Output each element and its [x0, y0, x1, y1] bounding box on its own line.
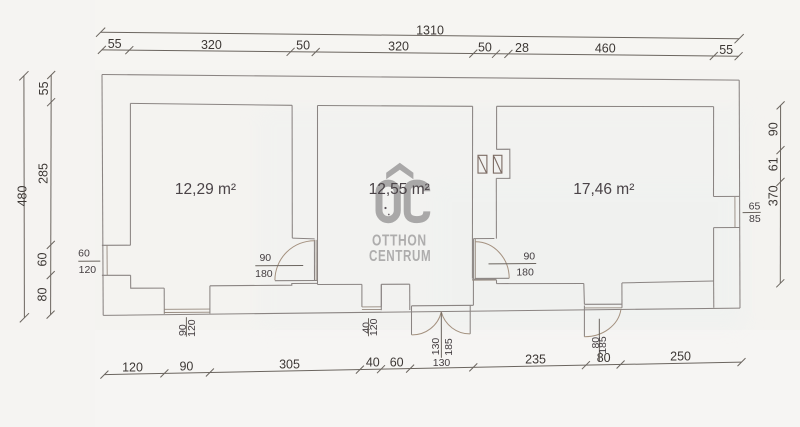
- svg-text:80: 80: [35, 288, 49, 302]
- svg-text:185: 185: [597, 336, 609, 354]
- svg-text:120: 120: [186, 319, 198, 337]
- svg-text:185: 185: [443, 338, 455, 356]
- svg-text:85: 85: [749, 213, 761, 225]
- svg-text:460: 460: [595, 42, 616, 56]
- svg-text:370: 370: [767, 185, 781, 206]
- svg-text:180: 180: [255, 268, 273, 280]
- svg-text:50: 50: [478, 41, 492, 55]
- svg-text:320: 320: [388, 40, 409, 54]
- svg-text:320: 320: [201, 38, 222, 52]
- svg-text:40: 40: [366, 356, 380, 370]
- svg-text:480: 480: [16, 186, 30, 207]
- svg-text:12,29 m²: 12,29 m²: [175, 181, 236, 198]
- svg-text:120: 120: [368, 318, 380, 336]
- svg-text:60: 60: [390, 355, 404, 369]
- svg-text:55: 55: [37, 81, 51, 95]
- svg-text:55: 55: [108, 37, 122, 51]
- svg-text:OTTHON: OTTHON: [372, 231, 427, 249]
- svg-text:130: 130: [433, 357, 451, 369]
- svg-text:90: 90: [179, 359, 193, 373]
- svg-text:250: 250: [670, 350, 691, 364]
- svg-text:50: 50: [296, 39, 310, 53]
- svg-text:12,55 m²: 12,55 m²: [369, 181, 430, 198]
- svg-text:235: 235: [525, 353, 546, 367]
- svg-text:305: 305: [279, 357, 300, 371]
- svg-text:180: 180: [516, 266, 534, 278]
- svg-text:60: 60: [35, 253, 49, 267]
- svg-text:130: 130: [430, 338, 442, 356]
- svg-text:60: 60: [78, 247, 90, 259]
- svg-text:120: 120: [122, 360, 143, 374]
- svg-text:65: 65: [749, 200, 761, 212]
- svg-text:1310: 1310: [416, 23, 444, 37]
- svg-text:55: 55: [719, 43, 733, 57]
- svg-text:90: 90: [259, 252, 271, 264]
- svg-text:CENTRUM: CENTRUM: [369, 248, 431, 265]
- svg-text:120: 120: [79, 264, 97, 276]
- svg-text:28: 28: [515, 41, 529, 55]
- svg-text:90: 90: [767, 122, 781, 136]
- svg-text:61: 61: [767, 157, 781, 171]
- svg-text:17,46 m²: 17,46 m²: [573, 181, 634, 198]
- svg-text:285: 285: [37, 163, 51, 184]
- svg-text:90: 90: [523, 250, 535, 262]
